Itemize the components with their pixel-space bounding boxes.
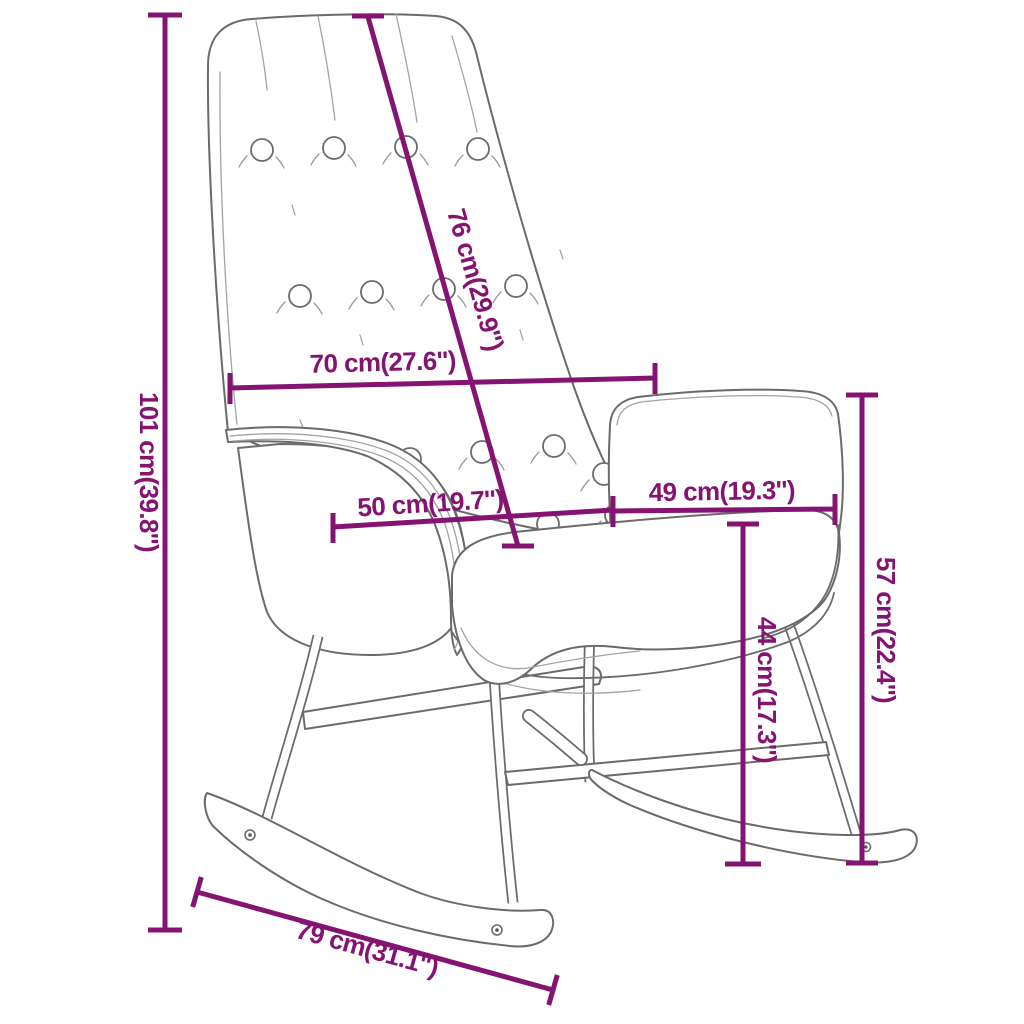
dim-overall-height: 101 cm(39.8'') xyxy=(134,15,182,930)
stretcher-board-upper xyxy=(303,666,601,729)
dim-armrest-height: 57 cm(22.4'') xyxy=(846,395,901,863)
dimension-label-backrest-width: 70 cm(27.6'') xyxy=(309,345,456,379)
dimension-label-armrest-depth: 49 cm(19.3'') xyxy=(648,475,795,508)
rocker-screw-dot xyxy=(248,833,252,837)
dimension-label-armrest-height: 57 cm(22.4'') xyxy=(871,557,901,703)
rocker-screw-dot xyxy=(864,845,867,848)
rocker-screw-dot xyxy=(495,928,499,932)
dimension-diagram: 101 cm(39.8'') 76 cm(29.9'') 70 cm(27.6'… xyxy=(0,0,1024,1024)
right-rocker-runner xyxy=(589,770,917,862)
rear-right-leg xyxy=(780,600,861,850)
support-strut xyxy=(529,716,581,759)
rocking-chair-diagram-canvas: 101 cm(39.8'') 76 cm(29.9'') 70 cm(27.6'… xyxy=(0,0,1024,1024)
dimension-label-seat-height: 44 cm(17.3'') xyxy=(752,617,782,763)
front-right-leg xyxy=(589,628,591,782)
dimension-label-overall-height: 101 cm(39.8'') xyxy=(134,392,164,552)
chair-line-art xyxy=(205,14,917,946)
